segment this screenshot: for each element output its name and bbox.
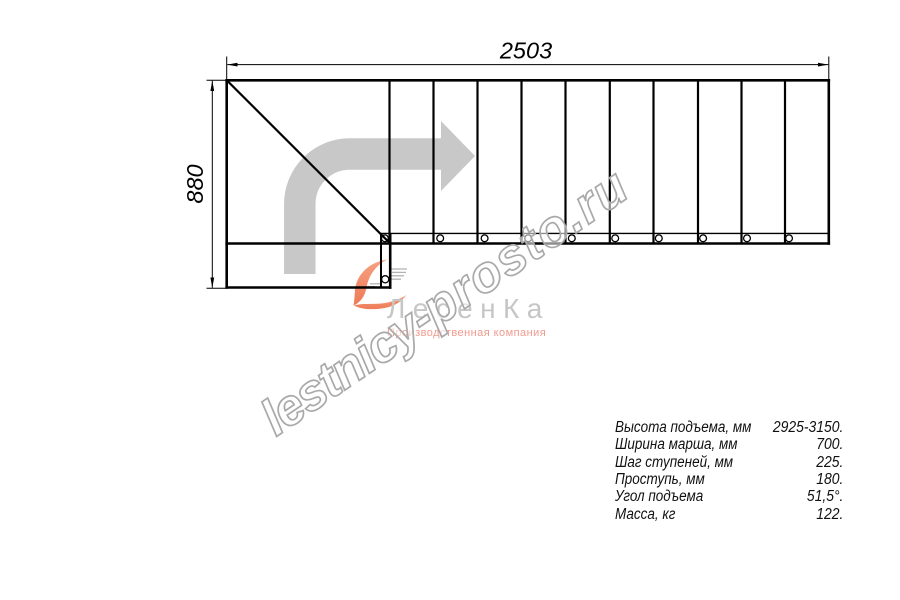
svg-text:880: 880 [182, 164, 208, 203]
svg-text:2503: 2503 [499, 38, 552, 64]
